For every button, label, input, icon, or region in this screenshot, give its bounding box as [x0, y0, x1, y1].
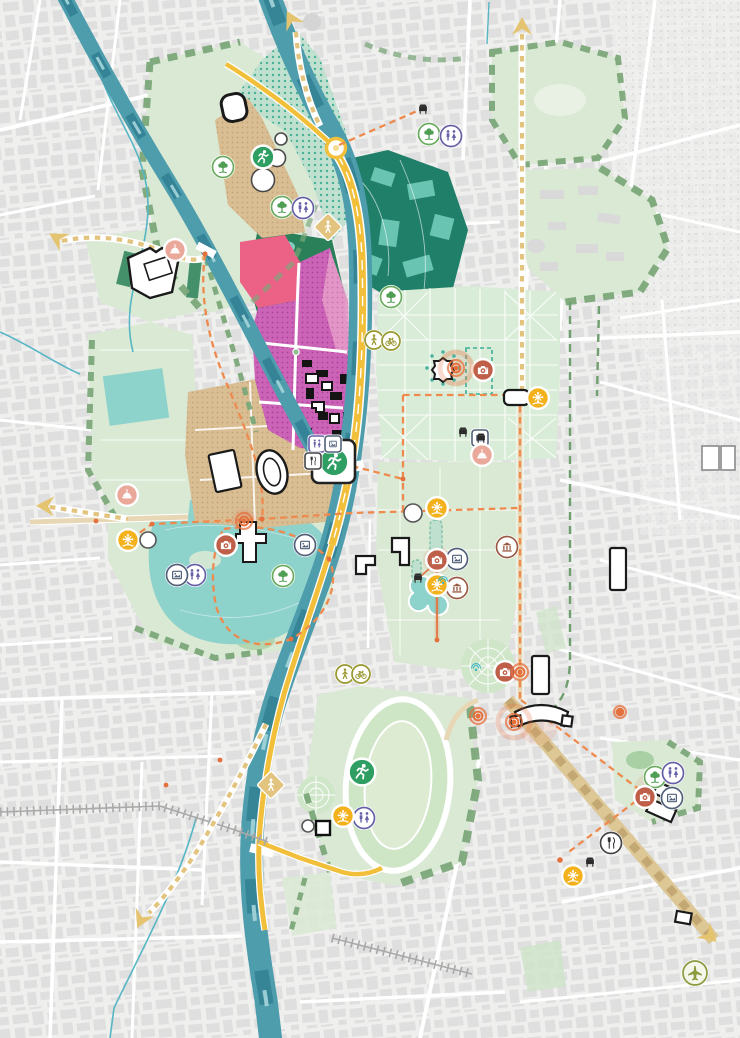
stadium-north	[220, 92, 249, 123]
sports-running-area-icon[interactable]	[347, 757, 376, 786]
attraction-wheel-icon[interactable]	[425, 496, 449, 520]
minor-poi-icon[interactable]	[302, 820, 314, 832]
park-green-space-icon[interactable]	[271, 564, 295, 588]
park-green-space-icon[interactable]	[270, 195, 294, 219]
museum-gallery-icon[interactable]	[324, 435, 343, 454]
gasometer	[303, 13, 321, 31]
park-green-space-icon[interactable]	[417, 122, 441, 146]
masterplan-map	[0, 0, 740, 1038]
photo-landmark-icon[interactable]	[425, 548, 449, 572]
food-point-icon[interactable]	[304, 452, 323, 471]
museum-gallery-icon[interactable]	[660, 786, 684, 810]
garden-pavilion	[504, 390, 529, 405]
park-right-small	[520, 940, 566, 992]
attraction-wheel-icon[interactable]	[425, 573, 449, 597]
photo-landmark-icon[interactable]	[471, 358, 495, 382]
sports-running-area-icon[interactable]	[250, 144, 275, 169]
museum-gallery-icon[interactable]	[165, 563, 189, 587]
public-toilets-icon[interactable]	[439, 124, 463, 148]
attraction-wheel-icon[interactable]	[561, 864, 585, 888]
religious-landmark-icon[interactable]	[115, 483, 139, 507]
park-green-space-icon[interactable]	[211, 155, 235, 179]
airport-direction-icon[interactable]	[681, 959, 708, 986]
bike-route-point-icon[interactable]	[380, 330, 401, 351]
minor-poi-icon[interactable]	[404, 504, 422, 522]
public-toilets-icon[interactable]	[661, 761, 685, 785]
radial-garden-west	[297, 776, 335, 814]
white-block-east	[702, 446, 735, 470]
left-pond	[103, 368, 169, 426]
public-toilets-icon[interactable]	[291, 196, 315, 220]
bike-route-point-icon[interactable]	[350, 663, 371, 684]
heritage-building-icon[interactable]	[495, 535, 519, 559]
key-development-node-icon[interactable]	[614, 706, 626, 718]
park-green-space-icon[interactable]	[379, 285, 403, 309]
roundabout	[327, 139, 346, 158]
religious-landmark-icon[interactable]	[470, 443, 494, 467]
religious-landmark-icon[interactable]	[163, 238, 187, 262]
attraction-wheel-icon[interactable]	[116, 528, 140, 552]
food-point-icon[interactable]	[599, 831, 623, 855]
public-toilets-icon[interactable]	[352, 806, 376, 830]
hall-south	[532, 656, 549, 694]
museum-gallery-icon[interactable]	[293, 533, 317, 557]
left-strip-park	[88, 322, 198, 522]
building-footprint-icon[interactable]	[316, 821, 330, 835]
photo-landmark-icon[interactable]	[493, 660, 517, 684]
attraction-wheel-icon[interactable]	[526, 386, 550, 410]
attraction-wheel-icon[interactable]	[331, 804, 355, 828]
photo-landmark-icon[interactable]	[633, 785, 657, 809]
photo-landmark-icon[interactable]	[214, 533, 238, 557]
tall-building	[610, 548, 626, 590]
minor-poi-icon[interactable]	[140, 532, 156, 548]
